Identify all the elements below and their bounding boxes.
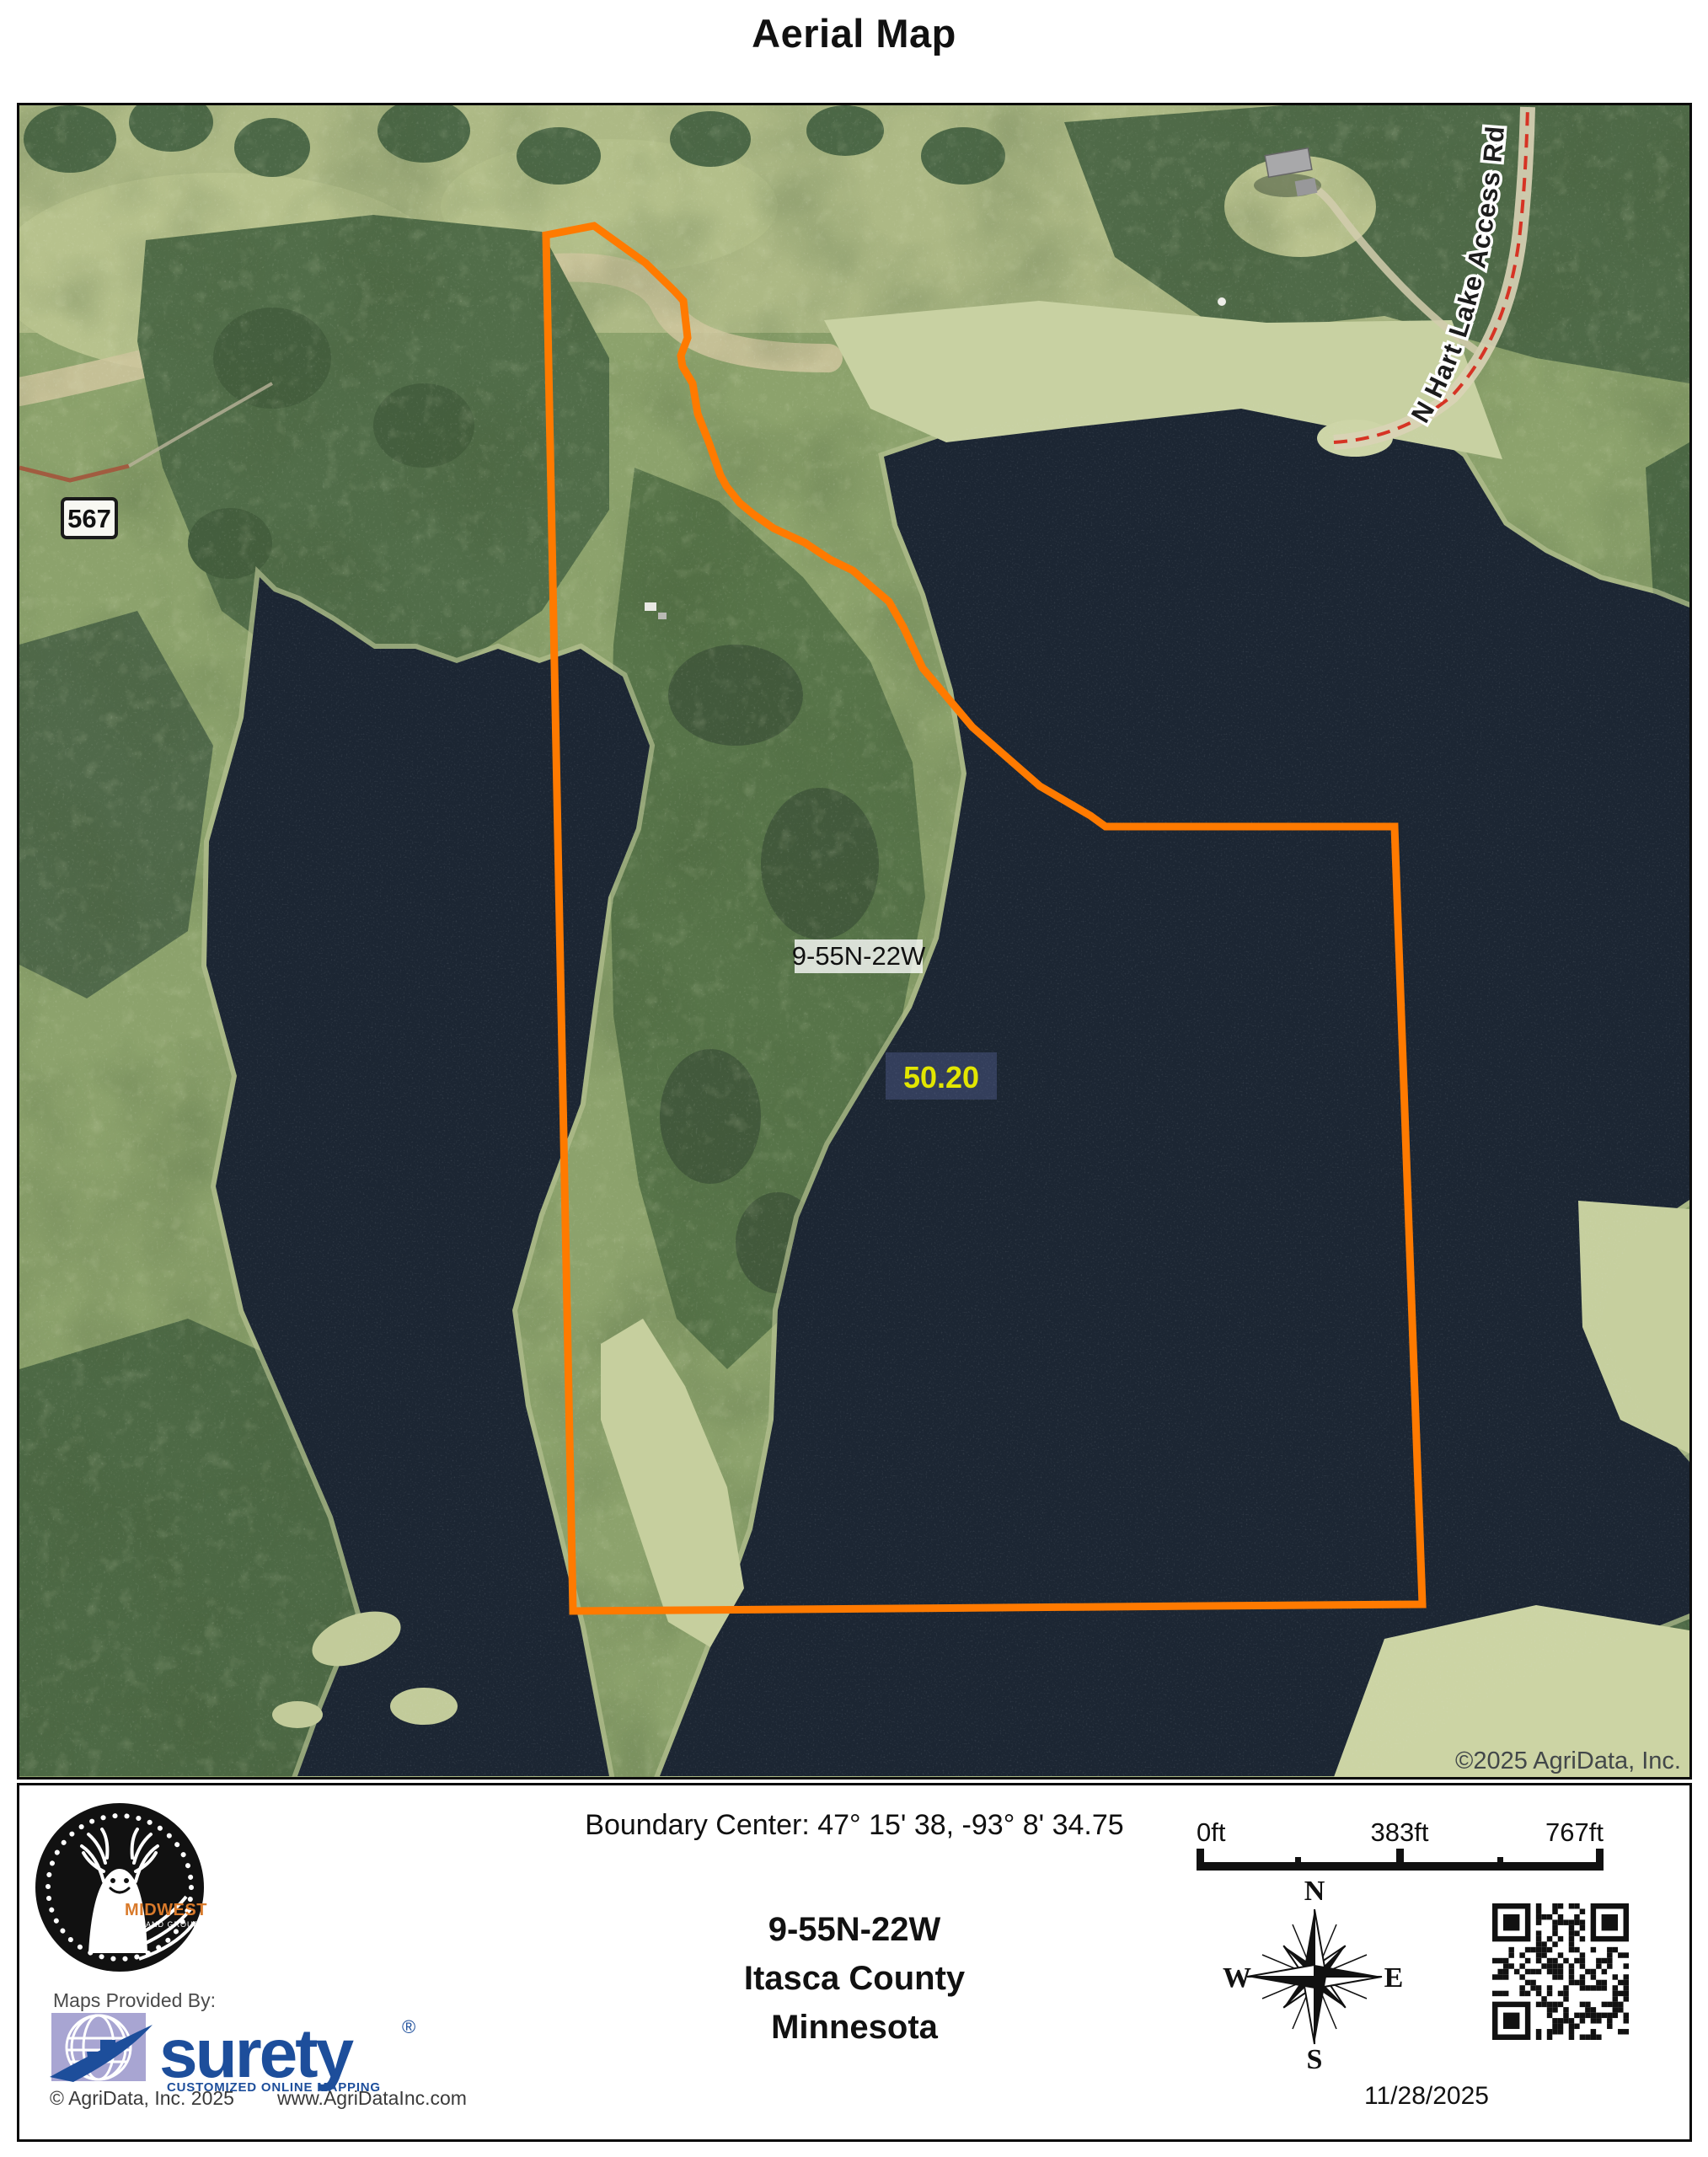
qr-code: [1492, 1903, 1629, 2040]
agridata-url: www.AgriDataInc.com: [277, 2087, 467, 2110]
compass-star: [1247, 1909, 1382, 2044]
cabin: [645, 602, 656, 611]
county-label: Itasca County: [19, 1954, 1689, 2003]
state-label: Minnesota: [19, 2003, 1689, 2052]
scale-bar: 0ft 383ft 767ft: [1180, 1809, 1618, 1876]
compass-rose: N S W E: [1212, 1870, 1417, 2072]
aerial-map: 567 9-55N-22W 50.20 N Hart Lake Access R…: [17, 103, 1692, 1780]
page-title: Aerial Map: [0, 10, 1708, 56]
boat: [1218, 297, 1226, 306]
scale-end: 767ft: [1545, 1817, 1604, 1847]
route-marker-567: 567: [62, 499, 116, 538]
scale-start: 0ft: [1197, 1817, 1226, 1847]
footer-panel: MIDWEST LAND GROUP Maps Provided By: sur…: [17, 1783, 1692, 2142]
township-label: 9-55N-22W: [19, 1905, 1689, 1954]
location-block: 9-55N-22W Itasca County Minnesota: [19, 1905, 1689, 2052]
map-copyright: ©2025 AgriData, Inc.: [1455, 1748, 1681, 1774]
route-marker-text: 567: [67, 504, 111, 533]
compass-n: N: [1304, 1876, 1325, 1907]
acres-label: 50.20: [903, 1060, 979, 1095]
parcel-label: 9-55N-22W: [792, 941, 926, 971]
map-date: 11/28/2025: [1334, 2082, 1519, 2111]
agridata-copyright: © AgriData, Inc. 2025: [50, 2087, 234, 2110]
compass-e: E: [1384, 1962, 1404, 1994]
compass-w: W: [1223, 1962, 1251, 1994]
compass-s: S: [1307, 2044, 1323, 2072]
scale-middle: 383ft: [1371, 1817, 1429, 1847]
